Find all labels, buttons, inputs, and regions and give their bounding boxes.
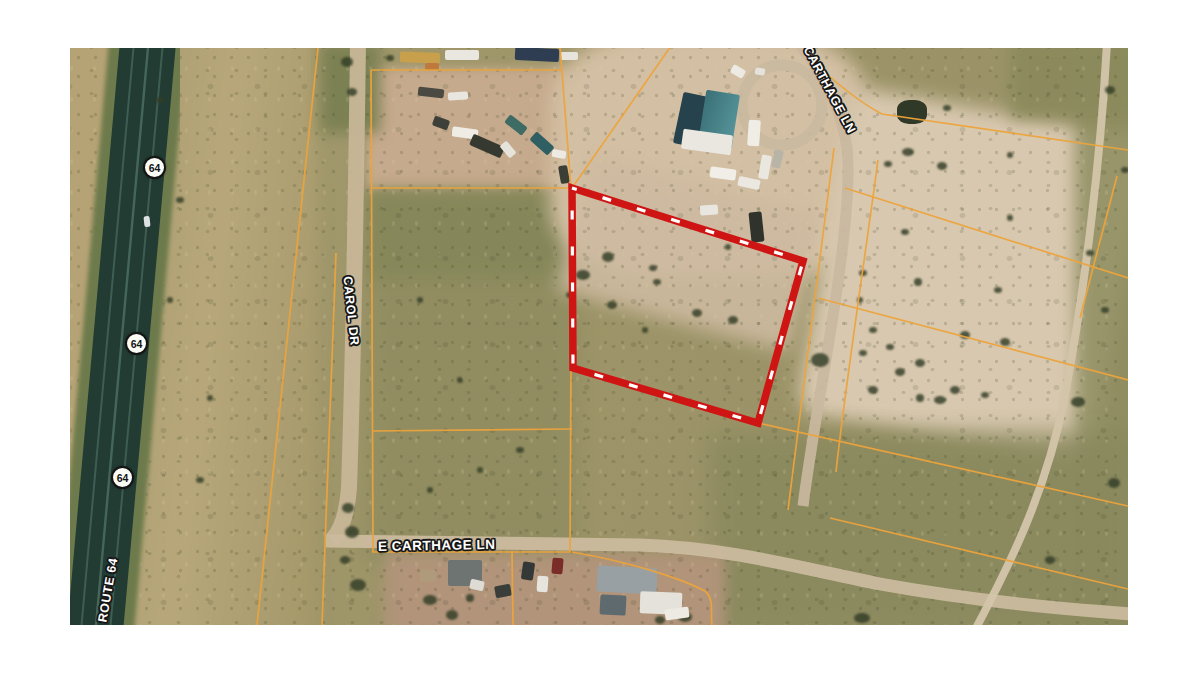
parcel-lines bbox=[257, 48, 1128, 625]
property-boundary bbox=[572, 188, 803, 423]
parcel-lines-layer bbox=[70, 48, 1128, 625]
map-canvas[interactable]: CAROL DR ROUTE 64 CARTHAGE LN E CARTHAGE… bbox=[70, 48, 1128, 625]
page: CAROL DR ROUTE 64 CARTHAGE LN E CARTHAGE… bbox=[0, 0, 1200, 675]
